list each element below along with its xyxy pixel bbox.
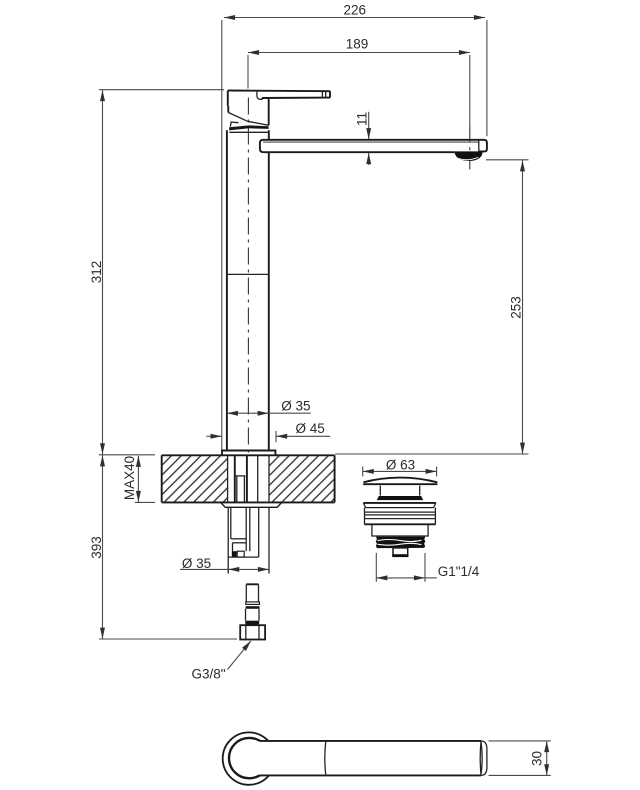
svg-text:226: 226 <box>344 3 367 18</box>
svg-text:393: 393 <box>89 536 104 559</box>
svg-text:Ø 45: Ø 45 <box>295 421 324 436</box>
svg-text:G1"1/4: G1"1/4 <box>438 564 480 579</box>
svg-text:30: 30 <box>530 751 545 766</box>
svg-text:253: 253 <box>509 296 524 319</box>
svg-text:11: 11 <box>355 112 370 126</box>
svg-text:G3/8": G3/8" <box>191 667 225 682</box>
svg-text:Ø 35: Ø 35 <box>281 398 310 413</box>
svg-text:Ø 63: Ø 63 <box>386 457 415 472</box>
svg-text:MAX40: MAX40 <box>122 456 137 500</box>
svg-text:312: 312 <box>89 261 104 284</box>
svg-text:Ø 35: Ø 35 <box>182 556 211 571</box>
svg-text:189: 189 <box>346 37 369 52</box>
